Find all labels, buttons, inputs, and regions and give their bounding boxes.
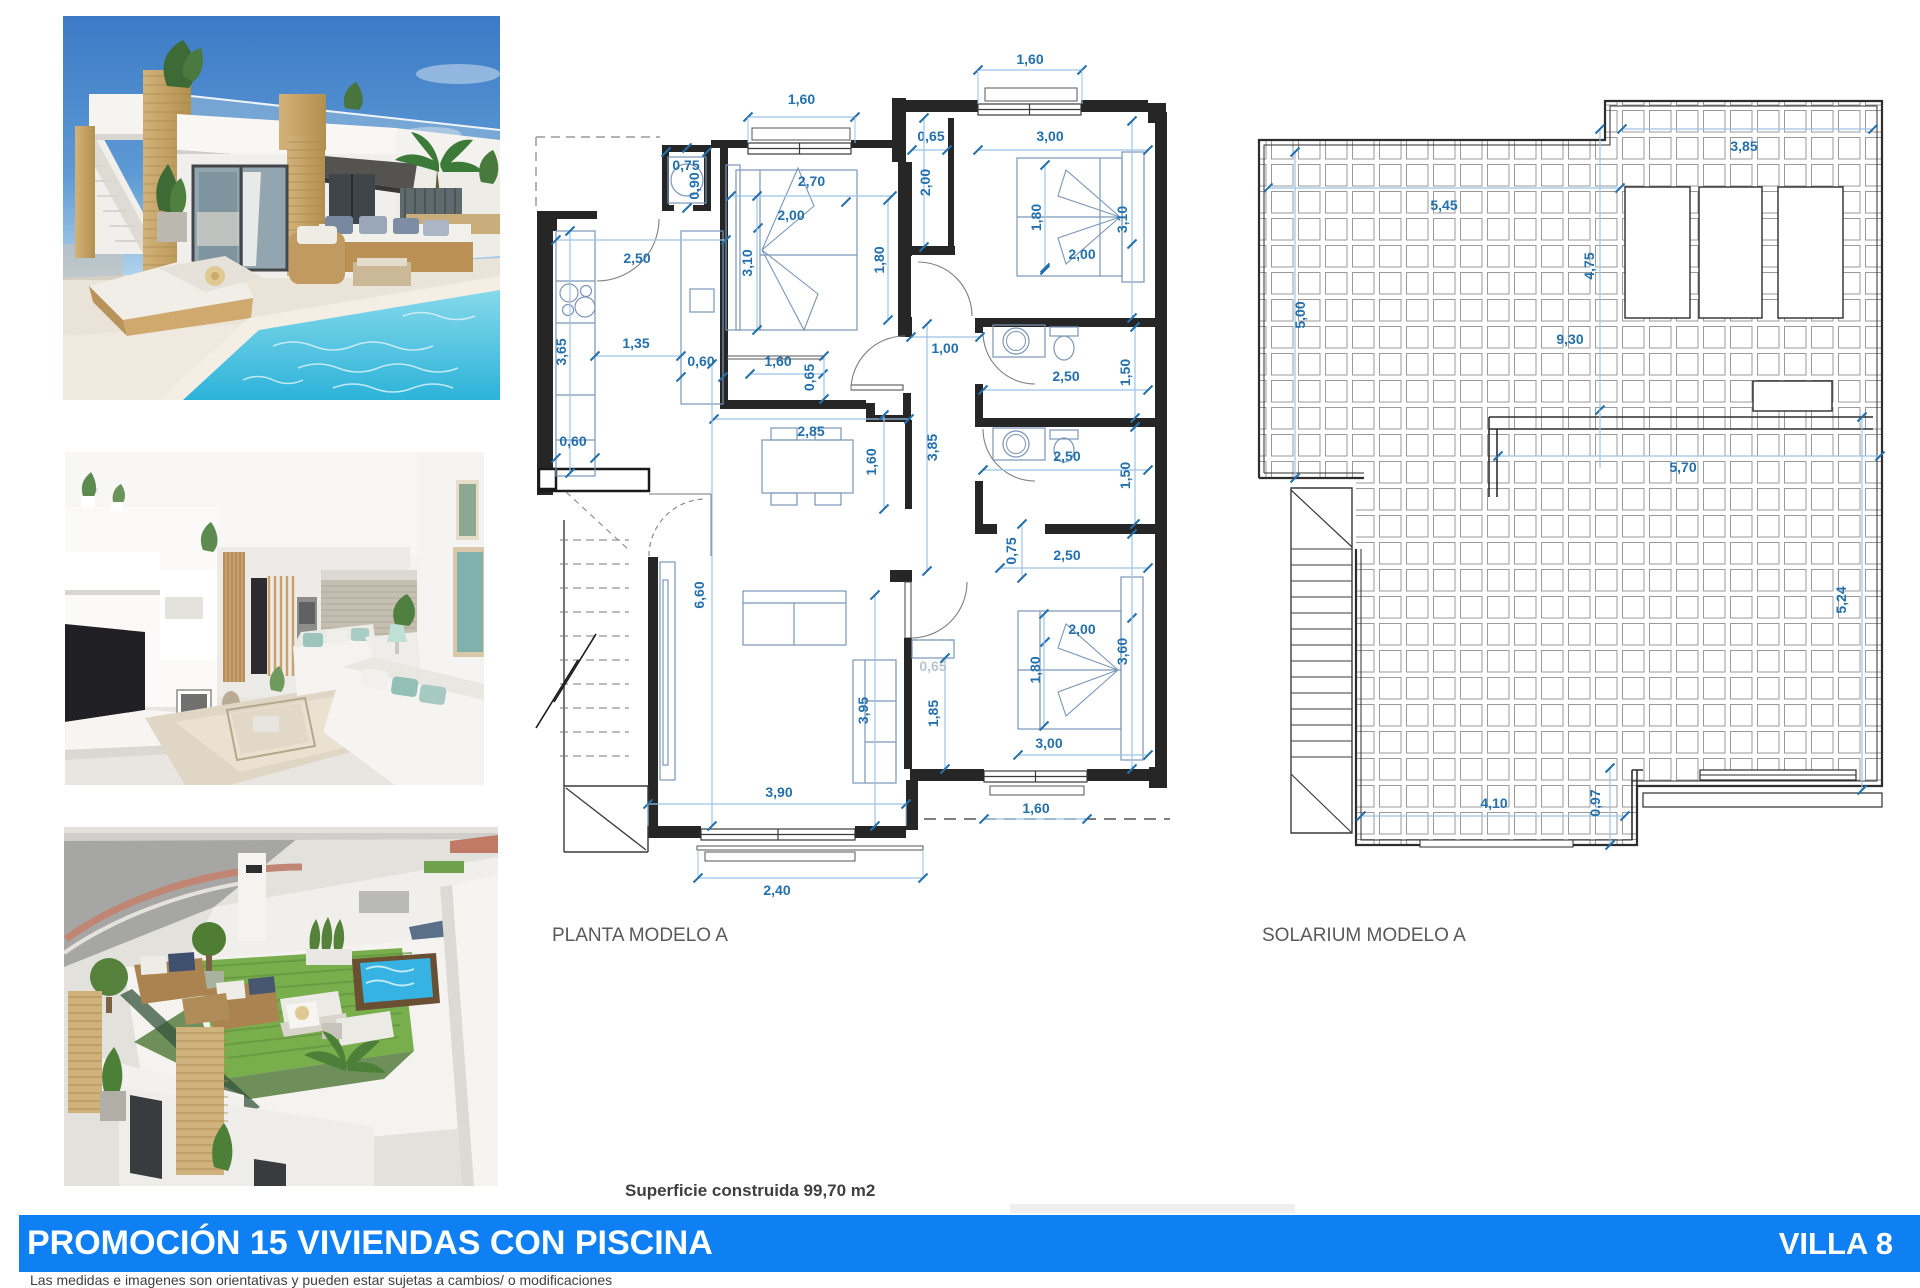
svg-text:2,50: 2,50 [1053,448,1080,464]
svg-text:1,50: 1,50 [1117,359,1133,386]
svg-text:2,00: 2,00 [917,169,933,196]
svg-text:1,80: 1,80 [871,246,887,273]
svg-text:1,00: 1,00 [931,340,958,356]
svg-text:5,45: 5,45 [1430,197,1457,213]
svg-text:2,00: 2,00 [1068,246,1095,262]
svg-text:1,50: 1,50 [1117,462,1133,489]
svg-text:4,75: 4,75 [1581,252,1597,279]
svg-text:2,00: 2,00 [1068,621,1095,637]
svg-text:0,65: 0,65 [801,364,817,391]
svg-text:0,60: 0,60 [559,433,586,449]
svg-text:1,35: 1,35 [622,335,649,351]
svg-text:3,85: 3,85 [1730,138,1757,154]
svg-text:1,60: 1,60 [788,91,815,107]
svg-text:0,65: 0,65 [917,128,944,144]
svg-text:3,65: 3,65 [553,338,569,365]
svg-text:3,85: 3,85 [924,434,940,461]
svg-text:3,10: 3,10 [1114,206,1130,233]
svg-text:2,00: 2,00 [777,207,804,223]
svg-text:9,30: 9,30 [1556,331,1583,347]
svg-text:2,50: 2,50 [1053,547,1080,563]
svg-text:0,75: 0,75 [672,157,699,173]
svg-text:1,60: 1,60 [1016,51,1043,67]
svg-text:3,10: 3,10 [739,249,755,276]
svg-text:1,60: 1,60 [1022,800,1049,816]
svg-text:4,10: 4,10 [1480,795,1507,811]
svg-text:2,50: 2,50 [1052,368,1079,384]
svg-text:2,70: 2,70 [798,173,825,189]
svg-text:1,60: 1,60 [863,448,879,475]
svg-text:3,00: 3,00 [1036,128,1063,144]
svg-text:2,85: 2,85 [797,423,824,439]
svg-text:0,75: 0,75 [1003,537,1019,564]
svg-text:3,60: 3,60 [1114,638,1130,665]
svg-text:1,80: 1,80 [1027,656,1043,683]
svg-text:1,60: 1,60 [764,353,791,369]
svg-text:5,70: 5,70 [1669,459,1696,475]
svg-text:3,95: 3,95 [855,697,871,724]
svg-text:3,00: 3,00 [1035,735,1062,751]
svg-text:2,50: 2,50 [623,250,650,266]
svg-text:1,85: 1,85 [925,700,941,727]
svg-text:6,60: 6,60 [691,581,707,608]
svg-text:5,00: 5,00 [1292,301,1308,328]
svg-text:3,90: 3,90 [765,784,792,800]
svg-text:2,40: 2,40 [763,882,790,898]
svg-text:1,80: 1,80 [1028,204,1044,231]
svg-text:5,24: 5,24 [1833,586,1849,613]
svg-text:0,97: 0,97 [1587,789,1603,816]
svg-text:0,90: 0,90 [686,172,702,199]
